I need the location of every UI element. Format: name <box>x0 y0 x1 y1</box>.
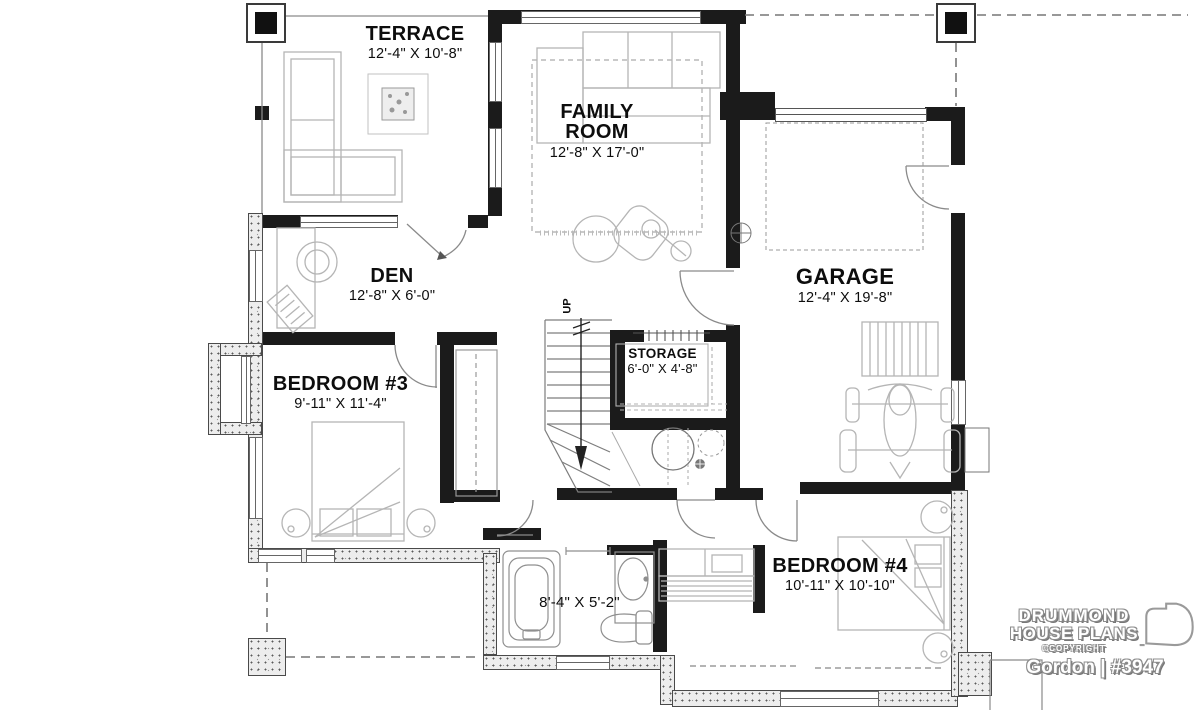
garage-door-panel <box>775 108 927 122</box>
brand-name-line2: HOUSE PLANS <box>1000 624 1148 644</box>
storage-name: STORAGE <box>615 347 710 361</box>
copyright-text: ©COPYRIGHT <box>1000 644 1148 653</box>
label-family-room: FAMILY ROOM 12'-8" X 17'-0" <box>527 102 667 161</box>
bedroom4-dims: 10'-11" X 10'-10" <box>755 578 925 594</box>
den-dims: 12'-8" X 6'-0" <box>322 288 462 304</box>
family-room-name-1: FAMILY <box>527 102 667 122</box>
den-name: DEN <box>322 266 462 286</box>
stairs-up-label: UP <box>562 298 574 313</box>
floor-plan: TERRACE 12'-4" X 10'-8" FAMILY ROOM 12'-… <box>0 0 1200 711</box>
bedroom3-closet <box>456 350 497 496</box>
terrace-table <box>368 74 428 134</box>
bedroom3-bed <box>282 422 435 541</box>
garage-atv <box>840 322 960 478</box>
staircase <box>545 320 612 492</box>
plan-id-text: Gordon | #3947 <box>1000 657 1190 679</box>
label-terrace: TERRACE 12'-4" X 10'-8" <box>320 24 510 62</box>
label-storage: STORAGE 6'-0" X 4'-8" <box>615 347 710 376</box>
bathroom-dims: 8'-4" X 5'-2" <box>532 594 627 611</box>
garage-name: GARAGE <box>775 266 915 288</box>
stairs-direction-arrow <box>573 318 590 470</box>
terrace-name: TERRACE <box>320 24 510 44</box>
garage-dims: 12'-4" X 19'-8" <box>775 290 915 306</box>
terrace-dims: 12'-4" X 10'-8" <box>320 46 510 62</box>
family-room-name-2: ROOM <box>527 122 667 142</box>
bedroom4-name: BEDROOM #4 <box>755 556 925 576</box>
label-bathroom: 8'-4" X 5'-2" <box>532 592 627 611</box>
drummond-logo: DRUMMOND HOUSE PLANS ©COPYRIGHT Gordon |… <box>1000 600 1200 695</box>
storage-dims: 6'-0" X 4'-8" <box>615 361 710 376</box>
label-den: DEN 12'-8" X 6'-0" <box>322 266 462 304</box>
brand-name-line1: DRUMMOND <box>1000 606 1148 626</box>
toilet <box>601 611 652 644</box>
bedroom3-dims: 9'-11" X 11'-4" <box>248 396 433 412</box>
label-bedroom4: BEDROOM #4 10'-11" X 10'-10" <box>755 556 925 594</box>
bedroom3-name: BEDROOM #3 <box>248 374 433 394</box>
water-heater <box>612 428 724 487</box>
label-bedroom3: BEDROOM #3 9'-11" X 11'-4" <box>248 374 433 412</box>
family-room-dims: 12'-8" X 17'-0" <box>527 145 667 161</box>
label-garage: GARAGE 12'-4" X 19'-8" <box>775 266 915 306</box>
